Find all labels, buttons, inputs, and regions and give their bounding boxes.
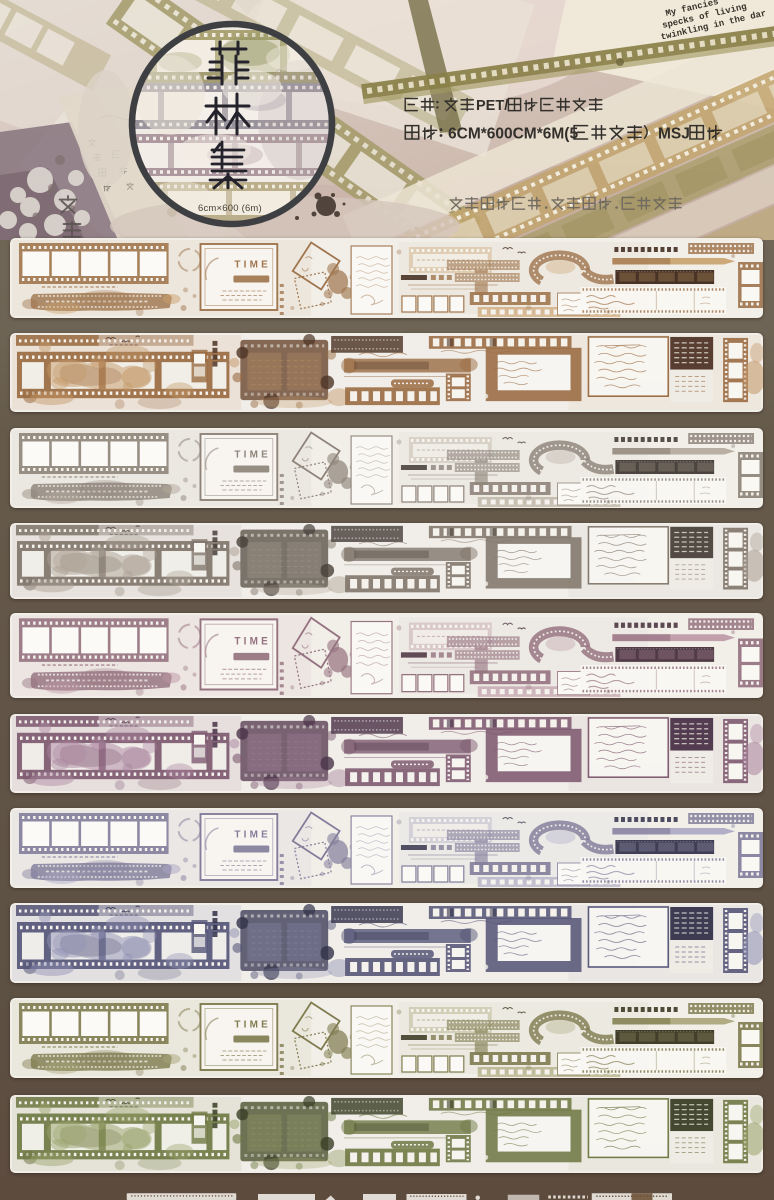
svg-text:PET/: PET/	[476, 98, 508, 114]
svg-text:MSJ: MSJ	[658, 126, 690, 143]
svg-text:6CM*600CM*6M(5: 6CM*600CM*6M(5	[448, 126, 578, 143]
svg-text:6cm×600 (6m): 6cm×600 (6m)	[198, 203, 262, 214]
